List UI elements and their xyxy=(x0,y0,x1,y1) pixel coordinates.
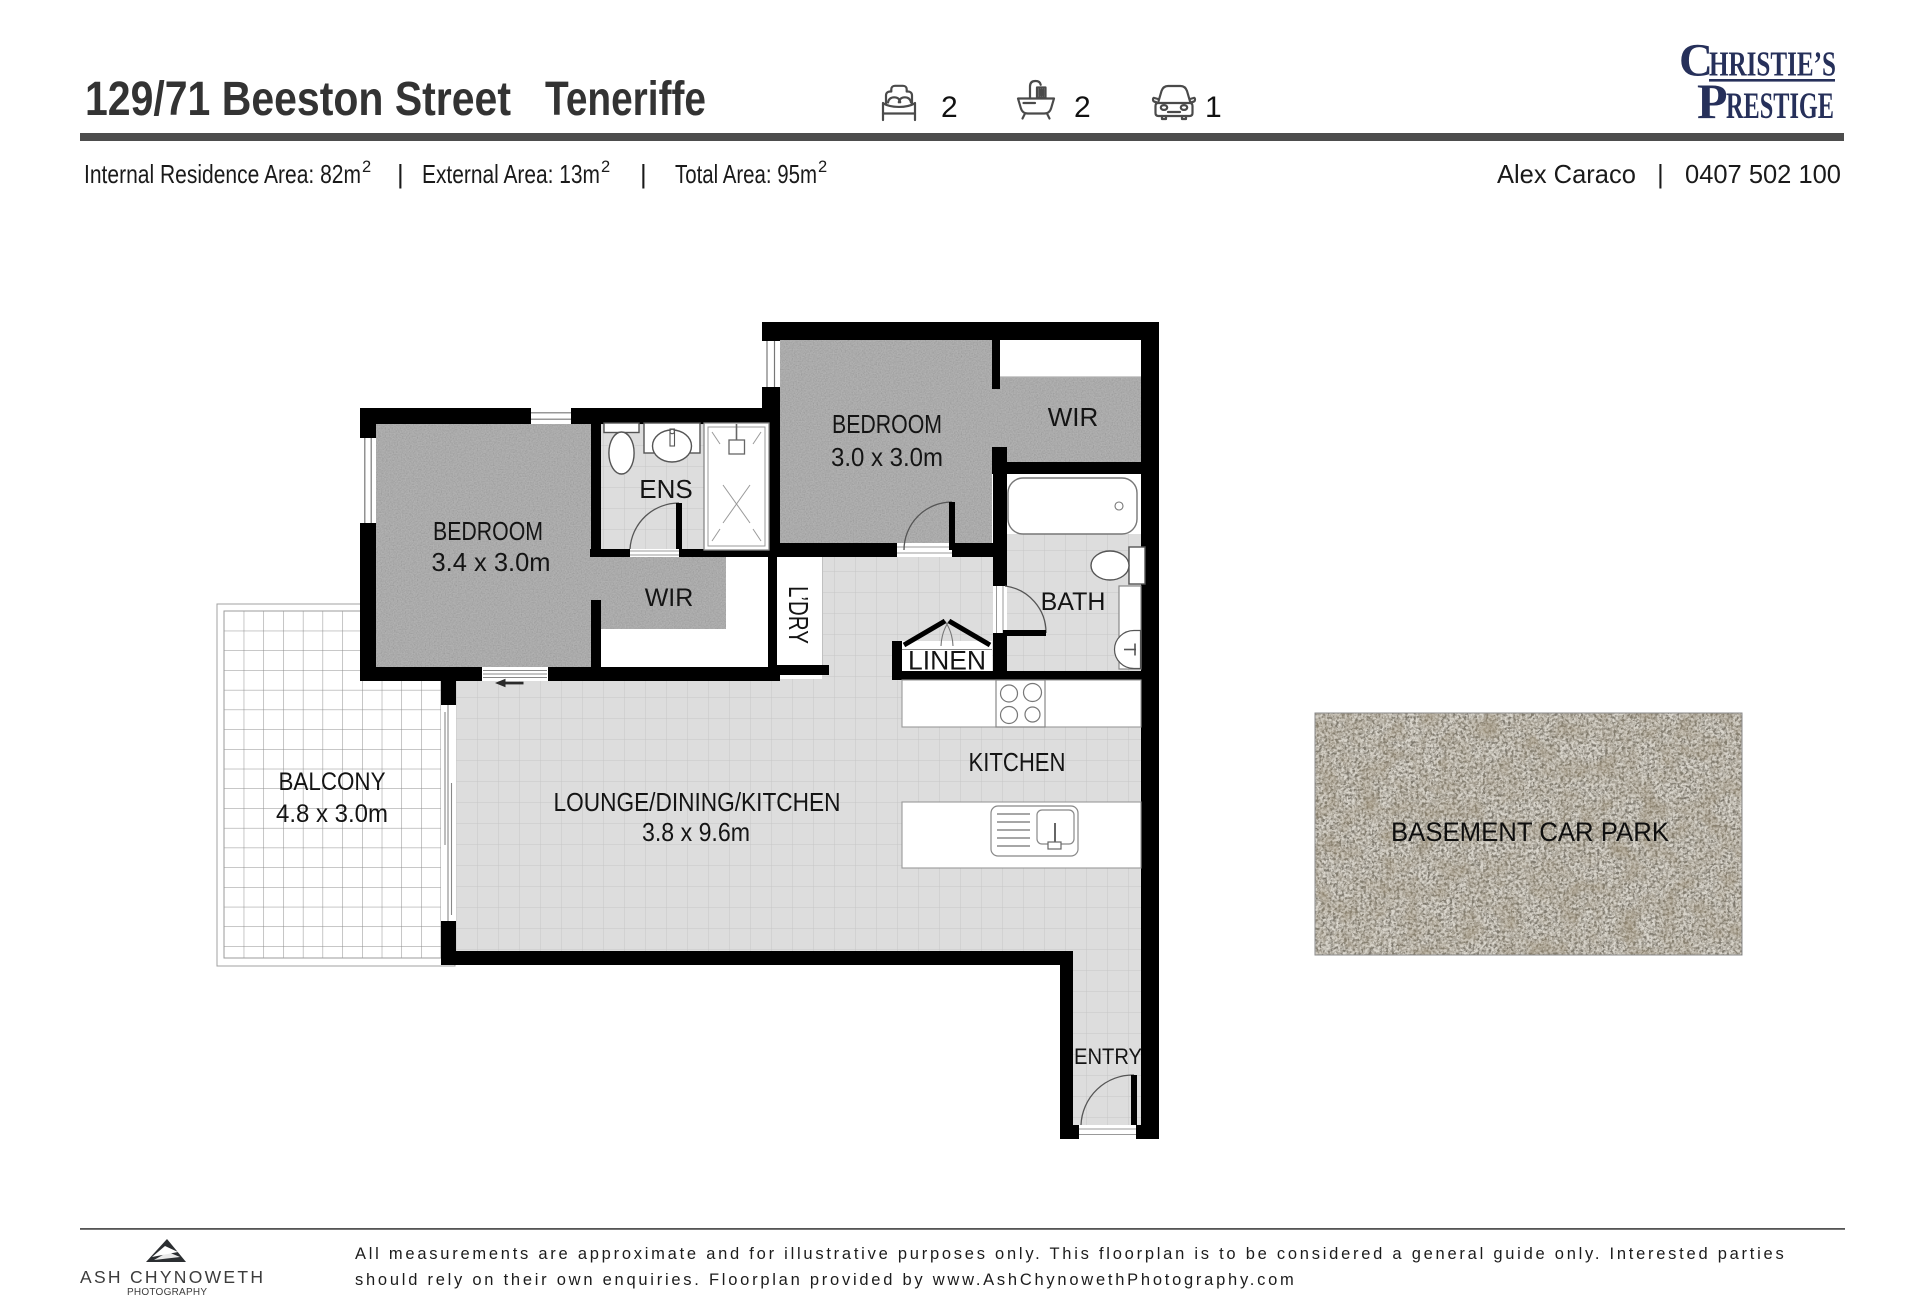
svg-text:Total Area: 95m: Total Area: 95m xyxy=(675,159,817,189)
svg-text:BALCONY: BALCONY xyxy=(279,768,386,796)
svg-text:3.8 x 9.6m: 3.8 x 9.6m xyxy=(642,817,750,847)
svg-text:should rely on their own enqui: should rely on their own enquiries. Floo… xyxy=(355,1271,1297,1289)
svg-text:P: P xyxy=(1697,73,1728,129)
svg-text:1: 1 xyxy=(1205,91,1222,124)
svg-text:Teneriffe: Teneriffe xyxy=(545,73,706,126)
svg-text:3.0 x 3.0m: 3.0 x 3.0m xyxy=(831,442,943,472)
svg-text:WIR: WIR xyxy=(1048,402,1099,432)
svg-text:129/71 Beeston Street: 129/71 Beeston Street xyxy=(85,73,511,126)
svg-text:WIR: WIR xyxy=(645,584,694,612)
svg-text:L’DRY: L’DRY xyxy=(783,586,814,644)
svg-text:Alex Caraco | 0407 502 100: Alex Caraco | 0407 502 100 xyxy=(1497,159,1841,189)
svg-text:LINEN: LINEN xyxy=(908,646,986,676)
svg-text:ASH CHYNOWETH: ASH CHYNOWETH xyxy=(80,1267,263,1287)
svg-text:PHOTOGRAPHY: PHOTOGRAPHY xyxy=(127,1287,207,1298)
svg-text:4.8 x 3.0m: 4.8 x 3.0m xyxy=(276,800,388,828)
svg-text:Internal Residence Area: 82m: Internal Residence Area: 82m xyxy=(84,159,361,189)
svg-text:BATH: BATH xyxy=(1041,588,1106,616)
svg-text:BEDROOM: BEDROOM xyxy=(832,409,942,439)
svg-text:External Area: 13m: External Area: 13m xyxy=(422,159,600,189)
svg-text:2: 2 xyxy=(1074,91,1091,124)
svg-text:BEDROOM: BEDROOM xyxy=(433,516,543,546)
svg-text:ENTRY: ENTRY xyxy=(1074,1044,1142,1069)
svg-text:ENS: ENS xyxy=(639,474,692,504)
svg-text:RESTIGE: RESTIGE xyxy=(1726,86,1834,127)
svg-text:|: | xyxy=(397,159,404,189)
svg-text:KITCHEN: KITCHEN xyxy=(969,747,1066,777)
svg-text:2: 2 xyxy=(818,158,827,176)
svg-text:All measurements are approxima: All measurements are approximate and for… xyxy=(355,1245,1786,1263)
svg-text:LOUNGE/DINING/KITCHEN: LOUNGE/DINING/KITCHEN xyxy=(554,787,841,817)
svg-text:2: 2 xyxy=(601,158,610,176)
svg-text:|: | xyxy=(640,159,647,189)
svg-text:HRISTIE’S: HRISTIE’S xyxy=(1709,45,1836,84)
svg-text:BASEMENT CAR PARK: BASEMENT CAR PARK xyxy=(1391,817,1669,847)
svg-text:2: 2 xyxy=(941,91,958,124)
svg-text:2: 2 xyxy=(362,158,371,176)
svg-text:3.4 x 3.0m: 3.4 x 3.0m xyxy=(432,547,551,577)
